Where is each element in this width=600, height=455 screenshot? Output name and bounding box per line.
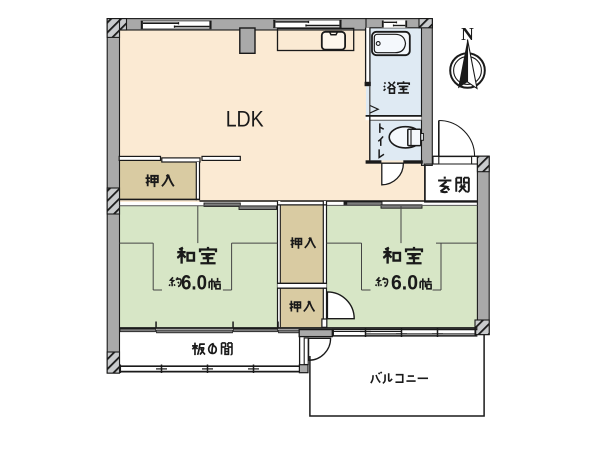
svg-text:6.0: 6.0	[181, 271, 207, 295]
svg-text:LDK: LDK	[226, 107, 264, 132]
svg-text:6.0: 6.0	[391, 271, 418, 295]
svg-text:N: N	[461, 24, 474, 44]
